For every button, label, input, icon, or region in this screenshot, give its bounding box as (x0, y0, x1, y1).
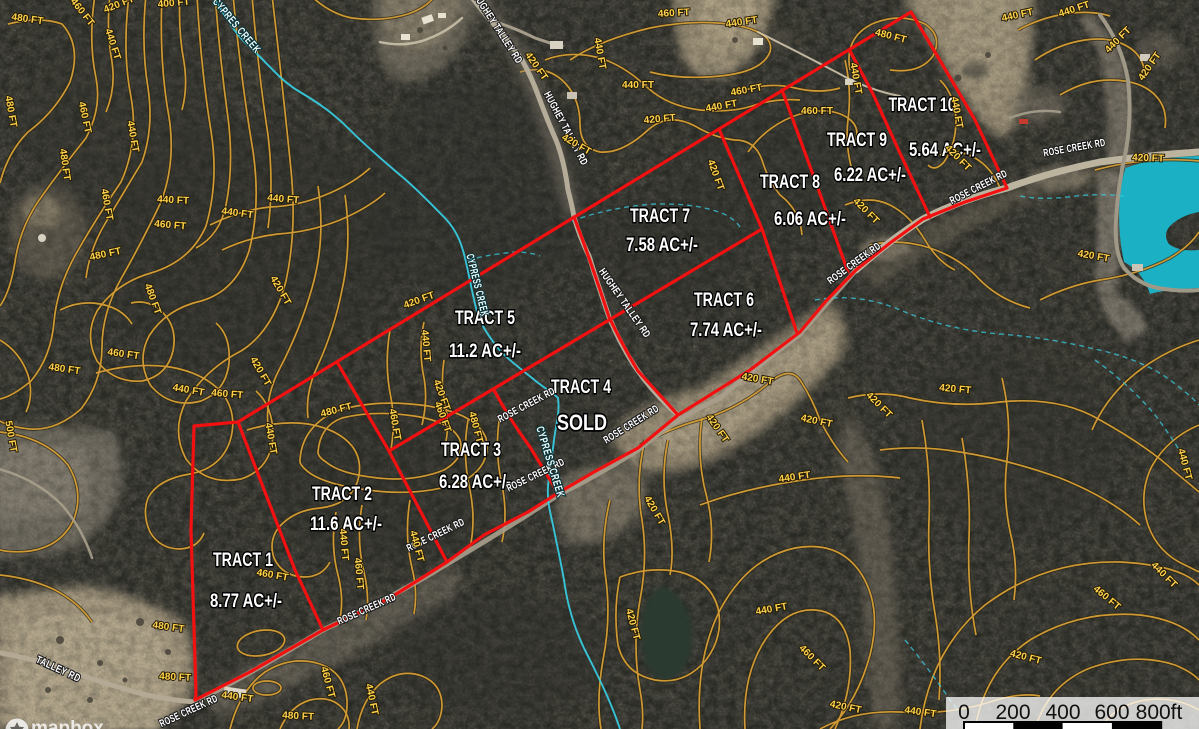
svg-text:460 FT: 460 FT (801, 106, 833, 117)
svg-text:TRACT 4: TRACT 4 (551, 377, 611, 398)
svg-text:TRACT 7: TRACT 7 (630, 206, 690, 227)
svg-text:8.77 AC+/-: 8.77 AC+/- (210, 591, 282, 612)
svg-text:6.06 AC+/-: 6.06 AC+/- (774, 209, 846, 230)
svg-text:mapbox: mapbox (31, 718, 104, 729)
svg-text:440 FT: 440 FT (157, 194, 190, 207)
svg-text:480 FT: 480 FT (282, 710, 315, 723)
svg-text:800ft: 800ft (1136, 701, 1183, 724)
svg-text:420 FT: 420 FT (1132, 152, 1164, 164)
svg-text:TRACT 2: TRACT 2 (312, 484, 372, 505)
svg-text:6.28 AC+/-: 6.28 AC+/- (439, 472, 511, 493)
svg-text:460 FT: 460 FT (658, 7, 691, 20)
svg-text:TRACT 3: TRACT 3 (441, 440, 501, 461)
svg-text:480 FT: 480 FT (159, 671, 192, 684)
svg-text:200: 200 (995, 701, 1030, 724)
svg-text:TRACT 9: TRACT 9 (827, 130, 887, 151)
svg-text:TRACT 6: TRACT 6 (694, 290, 754, 311)
svg-text:7.74 AC+/-: 7.74 AC+/- (690, 320, 762, 341)
svg-text:11.2 AC+/-: 11.2 AC+/- (449, 341, 521, 362)
svg-text:440 FT: 440 FT (622, 80, 654, 91)
svg-text:7.58 AC+/-: 7.58 AC+/- (626, 235, 698, 256)
svg-text:TRACT 8: TRACT 8 (760, 172, 820, 193)
svg-text:6.22 AC+/-: 6.22 AC+/- (834, 165, 906, 186)
svg-text:SOLD: SOLD (557, 410, 607, 435)
svg-text:600: 600 (1094, 701, 1129, 724)
svg-text:TRACT 10: TRACT 10 (889, 95, 956, 116)
svg-text:0: 0 (958, 701, 970, 724)
svg-text:400: 400 (1045, 701, 1080, 724)
